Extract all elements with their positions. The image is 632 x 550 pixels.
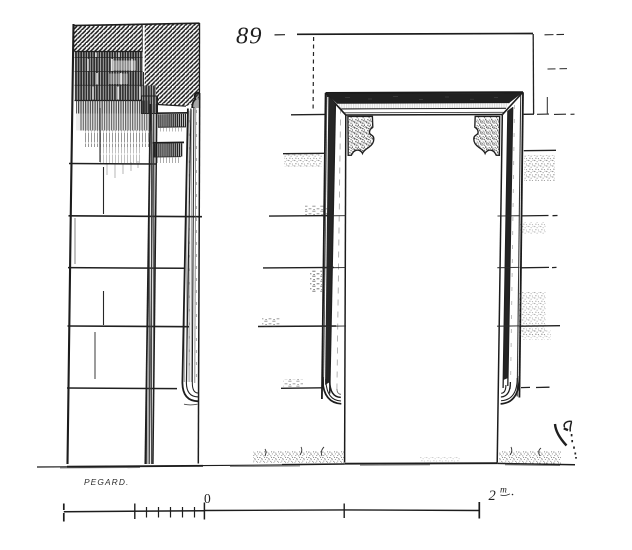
svg-text:2: 2: [489, 488, 496, 504]
svg-text:m: m: [500, 486, 507, 496]
svg-text:0: 0: [204, 491, 211, 506]
svg-text:89: 89: [236, 23, 263, 50]
svg-text:PEGARD.: PEGARD.: [84, 477, 129, 487]
